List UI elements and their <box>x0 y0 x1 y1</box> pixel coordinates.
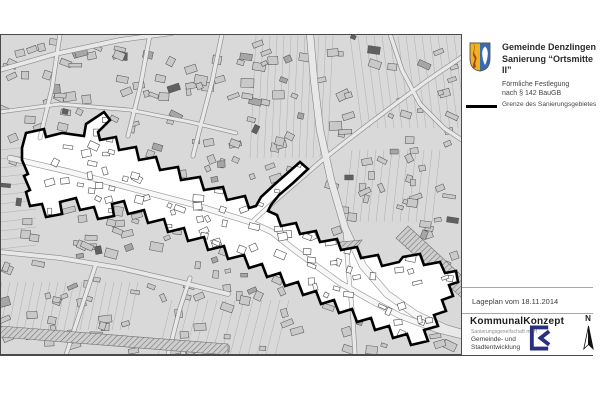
project-name: Sanierung “Ortsmitte II” <box>502 54 598 77</box>
sheet-bottom-border <box>0 355 593 356</box>
municipality-name: Gemeinde Denzlingen <box>502 42 598 54</box>
boundary-line-symbol <box>466 105 497 108</box>
site-plan-map <box>0 34 462 355</box>
panel-divider-lower <box>462 313 593 314</box>
legend-label: Grenze des Sanierungsgebietes <box>502 101 596 108</box>
plan-date: Lageplan vom 18.11.2014 <box>472 297 558 306</box>
plan-title: Gemeinde Denzlingen Sanierung “Ortsmitte… <box>502 42 598 77</box>
title-block-panel: Gemeinde Denzlingen Sanierung “Ortsmitte… <box>462 34 600 355</box>
panel-divider-upper <box>462 287 593 288</box>
firm-desc-line1: Gemeinde- und <box>471 336 520 344</box>
north-arrow-icon <box>582 325 595 351</box>
subtitle-line1: Förmliche Festlegung <box>502 80 598 89</box>
north-label: N <box>581 314 595 323</box>
plan-sheet: Gemeinde Denzlingen Sanierung “Ortsmitte… <box>0 0 600 400</box>
legend-item-boundary: Grenze des Sanierungsgebietes <box>462 100 598 112</box>
plan-subtitle: Förmliche Festlegung nach § 142 BauGB <box>502 80 598 98</box>
firm-desc-line2: Stadtentwicklung <box>471 344 520 352</box>
denzlingen-coat-of-arms-icon <box>469 42 491 72</box>
kommunalkonzept-logo-icon <box>528 324 553 352</box>
firm-description: Gemeinde- und Stadtentwicklung <box>471 336 520 352</box>
subtitle-line2: nach § 142 BauGB <box>502 89 598 98</box>
